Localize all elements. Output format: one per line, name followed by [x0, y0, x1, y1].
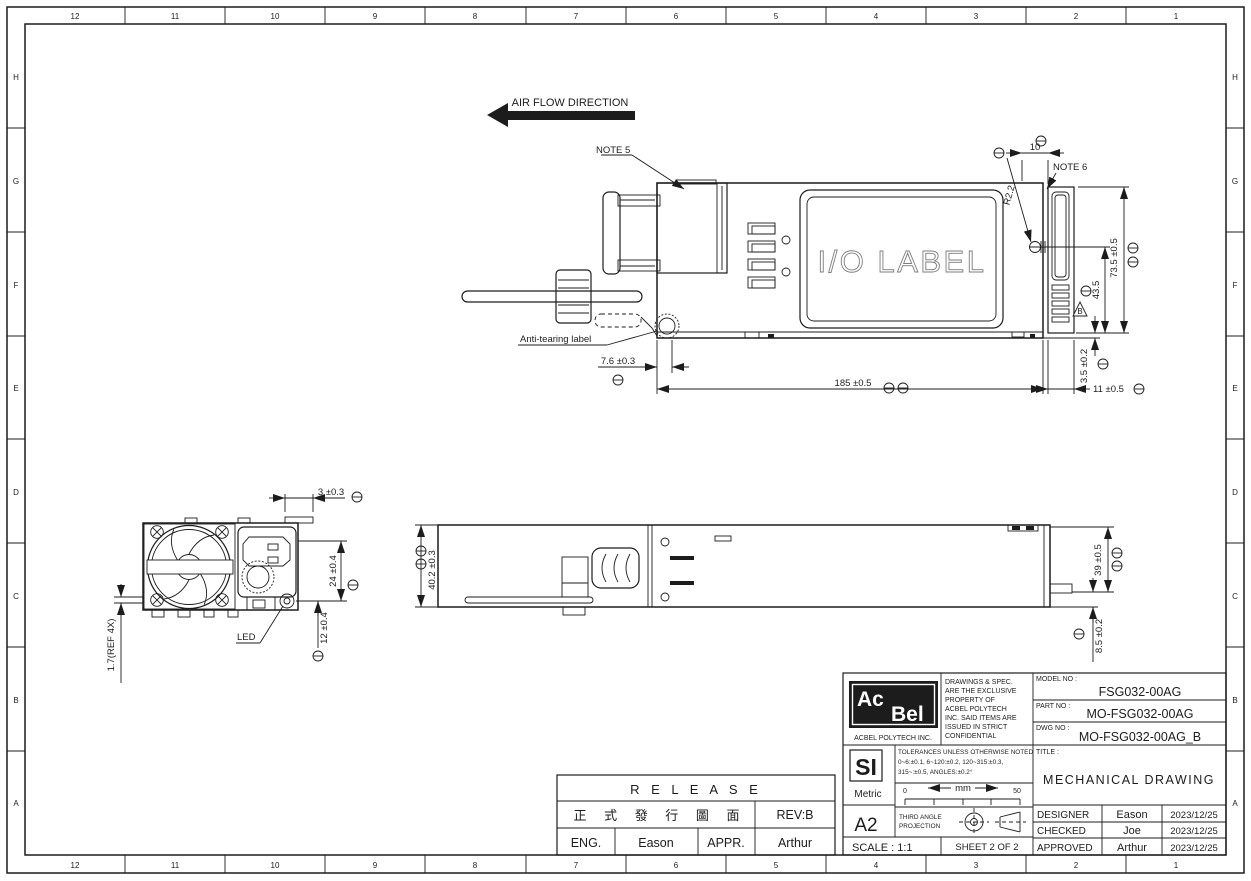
inspection-balloon-icon [994, 148, 1004, 158]
confidential-line: DRAWINGS & SPEC. [945, 679, 1013, 686]
grid-row-label: H [13, 73, 19, 82]
part-no-label: PART NO : [1036, 703, 1070, 710]
fan [144, 524, 235, 609]
grid-col-label: 10 [271, 12, 280, 21]
grid-row-label: C [1232, 592, 1238, 601]
dim-185: 185 ±0.5 [657, 340, 1043, 394]
grid-col-label: 8 [473, 12, 478, 21]
inspection-balloon-icon [884, 383, 894, 393]
ruler-zero: 0 [903, 788, 907, 795]
confidential-line: PROPERTY OF [945, 697, 995, 704]
dim-text: 43.5 [1091, 281, 1102, 300]
grid-col-label: 5 [774, 12, 779, 21]
confidential-line: ACBEL POLYTECH [945, 706, 1007, 713]
scale-label: SCALE : 1:1 [852, 842, 913, 854]
tolerance-line: 315~:±0.5, ANGLES:±0.2° [898, 768, 973, 776]
inspection-balloon-icon [313, 651, 323, 661]
inspection-balloon-icon [1036, 136, 1046, 146]
grid-row-label: B [13, 696, 18, 705]
grid-row-label: D [1232, 488, 1238, 497]
grid-row-label: F [14, 281, 19, 290]
side-view: 40.2 ±0.3 39 ±0.5 8.5 ±0.2 [415, 525, 1122, 662]
grid-col-label: 7 [574, 12, 579, 21]
approval-name: Arthur [1117, 842, 1147, 854]
grid-row-label: F [1233, 281, 1238, 290]
sheet-number: SHEET 2 OF 2 [955, 842, 1018, 853]
grid-col-label: 8 [473, 861, 478, 870]
grid-col-label: 6 [674, 12, 679, 21]
card-edge-connector [1048, 187, 1074, 333]
dim-text: 3.5 ±0.2 [1079, 349, 1090, 383]
approval-role: DESIGNER [1037, 810, 1089, 821]
io-label-text: I/O LABEL [818, 244, 987, 279]
dim-40-2: 40.2 ±0.3 [415, 525, 438, 607]
release-rev: REV:B [776, 808, 813, 822]
release-eng-label: ENG. [571, 836, 602, 850]
ruler-fifty: 50 [1013, 788, 1021, 795]
mm-scale-ruler: 0 mm 50 [903, 783, 1021, 805]
grid-col-label: 10 [271, 861, 280, 870]
grid-row-label: H [1232, 73, 1238, 82]
sheet-size: A2 [854, 815, 877, 836]
grid-col-label: 5 [774, 861, 779, 870]
dim-43-5: 43.5 B [1041, 247, 1110, 333]
approval-role: CHECKED [1037, 826, 1086, 837]
dim-r2-2: R2.2 [1002, 158, 1031, 242]
approval-role: APPROVED [1037, 843, 1093, 854]
acbel-logo: Ac Bel [849, 681, 938, 728]
grid-col-label: 2 [1074, 861, 1079, 870]
title-block: Ac Bel ACBEL POLYTECH INC. DRAWINGS & SP… [843, 673, 1226, 855]
dim-39: 39 ±0.5 [1050, 527, 1122, 592]
screw-icon [151, 526, 164, 539]
tolerance-note: TOLERANCES UNLESS OTHERWISE NOTED 0~6:±0… [898, 749, 1033, 776]
grid-col-label: 4 [874, 861, 879, 870]
model-no-label: MODEL NO : [1036, 676, 1077, 683]
approval-date: 2023/12/25 [1170, 843, 1218, 854]
tolerance-line: 0~6:±0.1, 6~120:±0.2, 120~315:±0.3, [898, 759, 1003, 766]
led-label: LED [237, 632, 256, 643]
company-name: ACBEL POLYTECH INC. [854, 735, 932, 742]
title-label: TITLE : [1036, 749, 1059, 756]
grid-col-label: 4 [874, 12, 879, 21]
grid-column-labels-bottom: 12 11 10 9 8 7 6 5 4 3 2 1 [71, 861, 1179, 870]
dim-3: 3 ±0.3 [269, 487, 362, 512]
dim-12: 12 ±0.4 [313, 601, 330, 661]
vent-louvers [748, 223, 790, 288]
inspection-balloon-icon [1128, 257, 1138, 267]
confidential-line: ISSUED IN STRICT [945, 724, 1008, 731]
grid-col-label: 12 [71, 861, 80, 870]
release-appr-label: APPR. [707, 836, 745, 850]
projection-label-line2: PROJECTION [899, 823, 941, 830]
grid-col-label: 2 [1074, 12, 1079, 21]
grid-row-label: A [1232, 799, 1238, 808]
inspection-balloon-icon [613, 375, 623, 385]
projection-label-line1: THIRD ANGLE [899, 814, 942, 821]
grid-row-label: C [13, 592, 19, 601]
inspection-balloon-icon [352, 492, 362, 502]
grid-col-label: 11 [171, 12, 180, 21]
io-label-area: I/O LABEL [800, 190, 1003, 328]
dim-text: 7.6 ±0.3 [601, 356, 635, 367]
grid-col-label: 1 [1174, 12, 1179, 21]
tolerance-title: TOLERANCES UNLESS OTHERWISE NOTED [898, 749, 1033, 756]
top-view: I/O LABEL NOTE 5 NOTE 6 Anti-tearing lab… [462, 136, 1144, 395]
confidential-line: CONFIDENTIAL [945, 733, 996, 740]
si-symbol: SI [855, 754, 877, 780]
inspection-balloon-icon [348, 580, 358, 590]
dim-text: 8.5 ±0.2 [1094, 619, 1105, 653]
dwg-no-label: DWG NO : [1036, 725, 1069, 732]
note6-label: NOTE 6 [1053, 162, 1087, 173]
datum-b-label: B [1077, 307, 1082, 316]
model-no-value: FSG032-00AG [1099, 685, 1182, 699]
inspection-balloon-icon [1081, 286, 1091, 296]
grid-col-label: 1 [1174, 861, 1179, 870]
dim-text: 10 [1030, 142, 1041, 153]
logo-text-bel: Bel [891, 703, 924, 726]
dim-24: 24 ±0.4 [296, 541, 358, 601]
air-flow-label: AIR FLOW DIRECTION [512, 97, 629, 109]
part-no-value: MO-FSG032-00AG [1087, 707, 1194, 721]
ruler-unit: mm [955, 783, 971, 794]
grid-row-label: B [1232, 696, 1237, 705]
anti-tearing-label: Anti-tearing label [520, 334, 591, 345]
dim-7-6: 7.6 ±0.3 [598, 340, 689, 385]
grid-row-label: G [13, 177, 19, 186]
grid-col-label: 12 [71, 12, 80, 21]
dim-text: 39 ±0.5 [1093, 544, 1104, 576]
air-flow-arrow-icon: AIR FLOW DIRECTION [487, 97, 635, 127]
grid-col-label: 7 [574, 861, 579, 870]
sheet-frame: 12 11 10 9 8 7 6 5 4 3 2 1 12 11 10 9 8 … [7, 7, 1244, 873]
grid-col-label: 3 [974, 12, 979, 21]
screw-icon [151, 594, 164, 607]
dim-text: 1.7(REF 4X) [106, 619, 117, 672]
approval-date: 2023/12/25 [1170, 810, 1218, 821]
grid-col-label: 6 [674, 861, 679, 870]
dim-73-5: 73.5 ±0.5 [1078, 187, 1138, 333]
pull-rod-top-view [462, 270, 657, 336]
anti-tearing-label-sticker [655, 314, 679, 338]
inspection-balloon-icon [1074, 629, 1084, 639]
release-eng-name: Eason [638, 836, 673, 850]
confidential-line: ARE THE EXCLUSIVE [945, 688, 1017, 695]
grid-col-label: 9 [373, 12, 378, 21]
handle-top-view [603, 192, 660, 274]
logo-text-ac: Ac [857, 688, 884, 711]
dim-3-5: 3.5 ±0.2 [1043, 316, 1108, 383]
note5-label: NOTE 5 [596, 145, 630, 156]
grid-col-label: 3 [974, 861, 979, 870]
dim-1-7-ref: 1.7(REF 4X) [106, 584, 143, 683]
dim-text: 73.5 ±0.5 [1109, 238, 1120, 278]
grid-row-label: E [13, 384, 18, 393]
approval-name: Joe [1123, 825, 1141, 837]
approval-name: Eason [1116, 809, 1147, 821]
dim-text: 11 ±0.5 [1093, 384, 1124, 395]
inspection-balloon-icon [1098, 359, 1108, 369]
grid-row-labels-right: H G F E D C B A [1232, 73, 1238, 808]
approval-rows: DESIGNER Eason 2023/12/25 CHECKED Joe 20… [1037, 809, 1218, 854]
front-view: LED 3 ±0.3 24 ±0.4 12 ±0.4 1.7(REF 4X) [106, 487, 362, 683]
projection-symbol-icon [959, 808, 1026, 836]
grid-row-label: A [13, 799, 19, 808]
grid-col-label: 9 [373, 861, 378, 870]
inspection-balloon-icon [1112, 561, 1122, 571]
dim-text: 12 ±0.4 [319, 612, 330, 644]
third-angle-projection: THIRD ANGLE PROJECTION [899, 808, 1026, 836]
dim-8-5: 8.5 ±0.2 [1050, 578, 1105, 662]
confidential-line: INC. SAID ITEMS ARE [945, 715, 1017, 722]
release-subtitle: 正 式 發 行 圖 面 [573, 808, 746, 823]
dim-text: 24 ±0.4 [328, 555, 339, 587]
approval-date: 2023/12/25 [1170, 826, 1218, 837]
dim-text: 185 ±0.5 [835, 378, 872, 389]
inspection-balloon-icon [1112, 548, 1122, 558]
dwg-no-value: MO-FSG032-00AG_B [1079, 730, 1201, 744]
drawing-sheet: 12 11 10 9 8 7 6 5 4 3 2 1 12 11 10 9 8 … [0, 0, 1251, 881]
dim-text: R2.2 [1002, 184, 1018, 206]
grid-row-label: E [1232, 384, 1237, 393]
ac-inlet [238, 527, 296, 597]
release-appr-name: Arthur [778, 836, 812, 850]
inspection-balloon-icon [1128, 243, 1138, 253]
inspection-balloon-icon [898, 383, 908, 393]
dim-text: 3 ±0.3 [318, 487, 344, 498]
grid-col-label: 11 [171, 861, 180, 870]
grid-row-label: G [1232, 177, 1238, 186]
screw-icon [216, 594, 229, 607]
grid-row-label: D [13, 488, 19, 497]
metric-label: Metric [854, 789, 881, 800]
screw-icon [216, 526, 229, 539]
dim-text: 40.2 ±0.3 [427, 550, 438, 590]
drawing-title: MECHANICAL DRAWING [1043, 773, 1215, 787]
grid-column-labels-top: 12 11 10 9 8 7 6 5 4 3 2 1 [71, 12, 1179, 21]
release-table: R E L E A S E 正 式 發 行 圖 面 REV:B ENG. Eas… [557, 775, 835, 855]
inspection-balloon-icon [1134, 384, 1144, 394]
release-title: R E L E A S E [630, 782, 762, 797]
confidential-note: DRAWINGS & SPEC. ARE THE EXCLUSIVE PROPE… [945, 679, 1017, 740]
grid-row-labels-left: H G F E D C B A [13, 73, 19, 808]
